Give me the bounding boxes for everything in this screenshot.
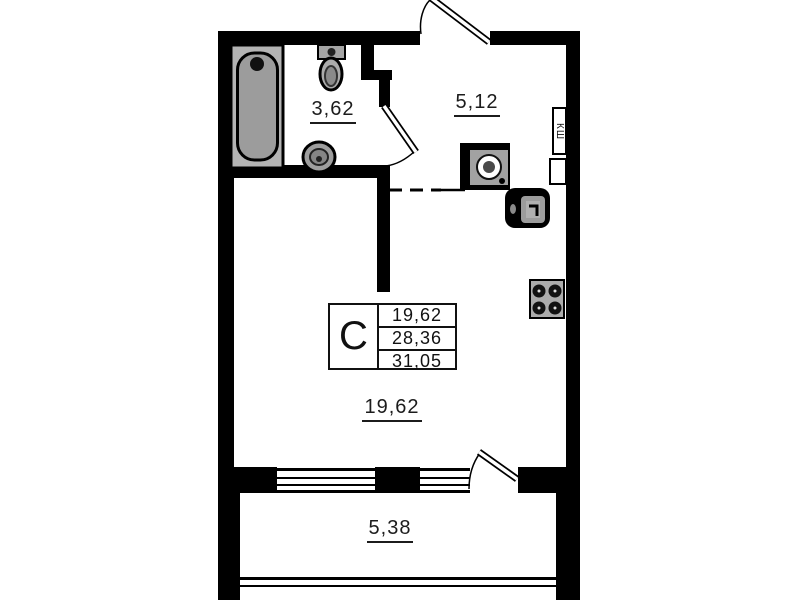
room-label-living: 19,62 <box>358 396 426 422</box>
floor-plan: КШ <box>0 0 799 600</box>
stamp-value-row: 28,36 <box>379 328 455 351</box>
room-label-hall: 5,12 <box>447 91 507 117</box>
bathroom-sink-icon <box>303 142 335 172</box>
apartment-stamp: C 19,62 28,36 31,05 <box>328 303 457 370</box>
bathtub-icon <box>231 45 283 168</box>
toilet-icon <box>318 45 345 90</box>
balcony-door-icon <box>469 452 517 489</box>
washing-machine-icon <box>460 143 510 190</box>
bathroom-door-icon <box>384 106 416 166</box>
stamp-values: 19,62 28,36 31,05 <box>379 305 455 368</box>
stove-icon <box>530 280 564 318</box>
fixtures-layer <box>0 0 799 600</box>
kitchen-sink-icon <box>505 188 550 228</box>
room-label-balcony: 5,38 <box>356 517 424 543</box>
stamp-value-row: 19,62 <box>379 305 455 328</box>
room-label-bathroom: 3,62 <box>303 98 363 124</box>
entrance-door-icon <box>420 0 489 42</box>
apartment-type-letter: C <box>330 305 379 368</box>
stamp-value-row: 31,05 <box>379 351 455 372</box>
